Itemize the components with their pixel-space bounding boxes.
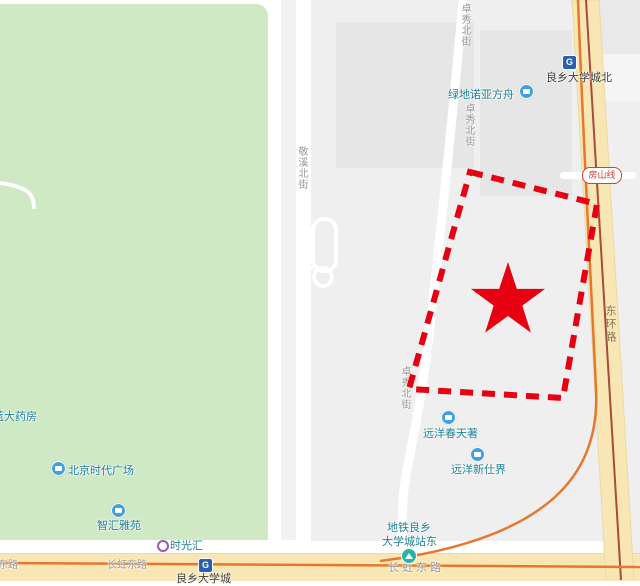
poi-shiguanghui[interactable]: 时光汇 <box>170 537 203 553</box>
road-label-zhuoxiu-1: 卓秀北街 <box>457 3 472 47</box>
poi-pharmacy[interactable]: 蓝大药房 <box>0 408 37 424</box>
station-exit-icon[interactable] <box>401 548 417 564</box>
park-side-road <box>270 0 281 541</box>
crossing-stub-left <box>560 172 583 179</box>
mall-icon[interactable] <box>157 540 169 552</box>
building-icon[interactable] <box>470 447 485 462</box>
fangshan-line-badge[interactable]: 房山线 <box>582 167 622 184</box>
station-main-label[interactable]: 良乡大学城 <box>176 570 231 586</box>
south-white-road <box>0 540 606 553</box>
road-label-jingxi: 敬溪北街 <box>294 146 309 190</box>
poi-times-square[interactable]: 北京时代广场 <box>68 462 134 478</box>
jingxi-north-road <box>296 0 311 541</box>
loop-circle <box>314 268 332 286</box>
poi-greenland-noah[interactable]: 绿地诺亚方舟 <box>448 86 514 102</box>
loop-driveway <box>313 219 336 271</box>
road-label-changhong-2: 长虹东路 <box>388 559 444 575</box>
road-label-changhong-1: 长虹东路 <box>107 556 147 571</box>
station-north-label[interactable]: 良乡大学城北 <box>546 69 612 85</box>
star-icon <box>471 262 545 333</box>
poi-zhihui-yayuan[interactable]: 智汇雅苑 <box>97 517 141 533</box>
building-icon[interactable] <box>441 410 456 425</box>
map-canvas[interactable]: { "map": { "park_color": "#cfe9c5", "acc… <box>0 0 640 580</box>
park-area <box>0 4 268 540</box>
poi-sino-ocean-new[interactable]: 远洋新仕界 <box>451 461 506 477</box>
poi-sino-ocean-spring[interactable]: 远洋春天著 <box>423 425 478 441</box>
building-icon[interactable] <box>519 84 534 99</box>
changhong-east-road <box>0 553 640 581</box>
building-icon[interactable] <box>51 461 66 476</box>
subway-logo-icon[interactable]: G <box>562 55 577 70</box>
median-block <box>281 0 296 541</box>
top-right-block <box>598 0 640 54</box>
road-label-donghuan: 东环路 <box>602 305 618 344</box>
road-label-zhuoxiu-2: 卓秀北街 <box>461 103 476 147</box>
road-label-zhuoxiu-3: 卓秀北街 <box>397 366 412 410</box>
road-label-changhong-west: 长虹东路 <box>0 556 18 571</box>
station-east-exit-label-line2[interactable]: 大学城站东 <box>382 533 437 549</box>
building-icon[interactable] <box>111 503 126 518</box>
